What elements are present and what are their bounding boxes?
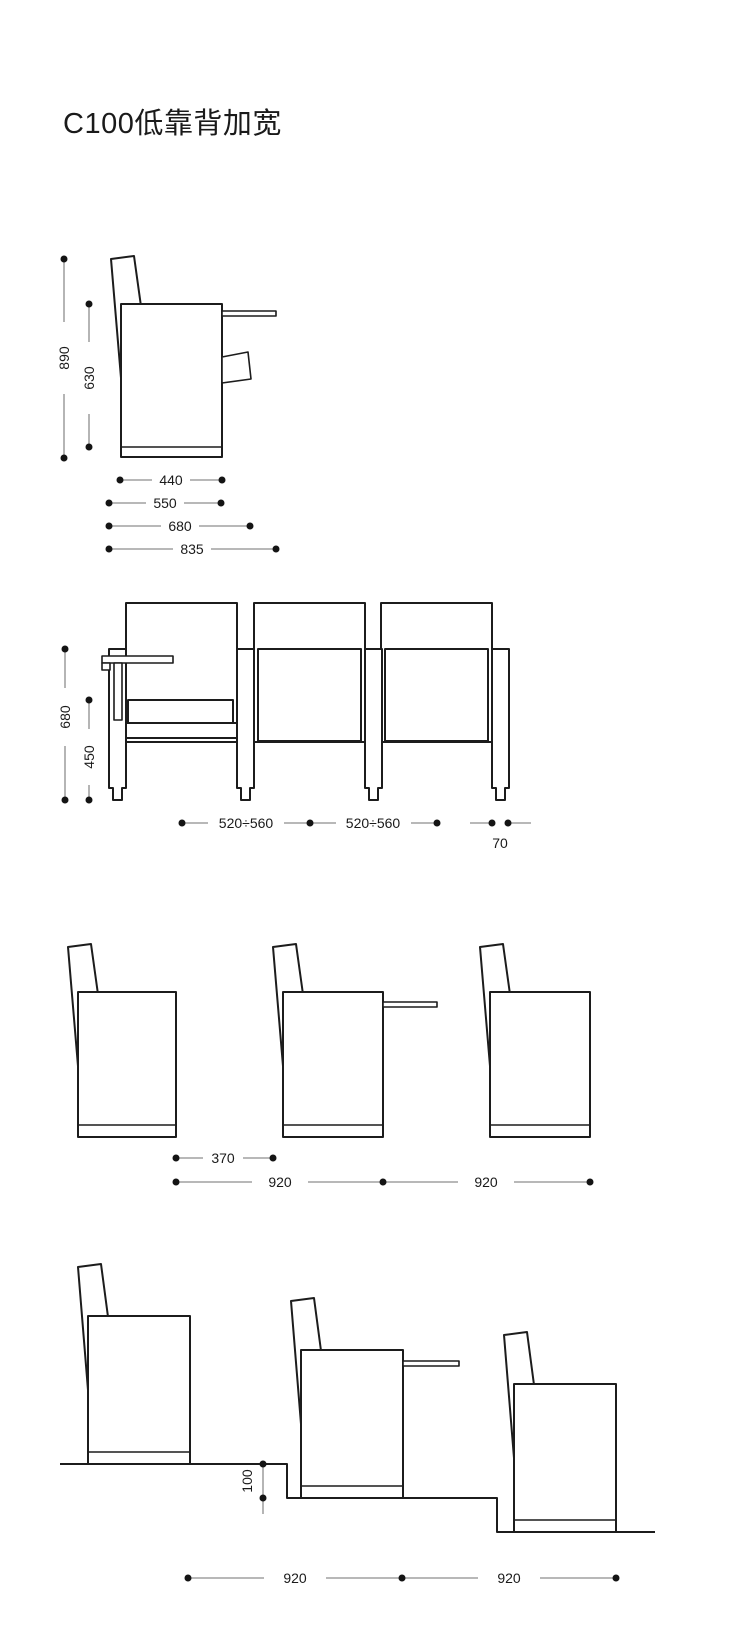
stowed-tablet-cap bbox=[102, 663, 110, 670]
dim-depth-550: 550 bbox=[106, 495, 225, 511]
view-row-flat: 370 920 920 bbox=[68, 944, 594, 1190]
tablet-arm bbox=[403, 1361, 459, 1366]
dim-label-row-pitch-1: 920 bbox=[268, 1174, 292, 1190]
chair-1 bbox=[78, 1264, 190, 1464]
dim-row-pitch-flat: 920 920 bbox=[173, 1174, 594, 1190]
seat-cushion-top bbox=[128, 700, 233, 723]
view-three-seat-front: 680 450 520÷560 520÷560 70 bbox=[57, 603, 531, 851]
seat-body bbox=[490, 992, 590, 1137]
dim-label-front-seat-height: 450 bbox=[81, 745, 97, 769]
dim-row-pitch-stepped: 920 920 bbox=[185, 1570, 620, 1586]
dim-seat-height: 630 bbox=[81, 301, 97, 451]
seat-body bbox=[514, 1384, 616, 1532]
dim-seat-widths: 520÷560 520÷560 70 bbox=[179, 815, 532, 851]
folded-seat-2 bbox=[258, 649, 361, 741]
tablet-arm bbox=[383, 1002, 437, 1007]
side-support-2 bbox=[237, 649, 254, 800]
seat-cushion-base bbox=[126, 723, 237, 738]
side-support-3 bbox=[365, 649, 382, 800]
chair-2 bbox=[291, 1298, 459, 1498]
dim-label-seat-width-right: 520÷560 bbox=[346, 815, 401, 831]
chair-2 bbox=[273, 944, 437, 1137]
dim-row-clearance: 370 bbox=[173, 1150, 277, 1166]
seat-body bbox=[88, 1316, 190, 1464]
dim-label-depth-550: 550 bbox=[153, 495, 177, 511]
dim-armrest-height: 680 bbox=[57, 646, 73, 804]
chair-1 bbox=[68, 944, 176, 1137]
dim-total-height: 890 bbox=[56, 256, 72, 462]
stowed-tablet bbox=[102, 656, 173, 663]
page-title: C100低靠背加宽 bbox=[63, 107, 282, 140]
folded-tablet bbox=[222, 352, 251, 383]
dim-label-row-pitch-2: 920 bbox=[497, 1570, 521, 1586]
folded-seat-3 bbox=[385, 649, 488, 741]
seat-body bbox=[78, 992, 176, 1137]
dim-label-row-pitch-1: 920 bbox=[283, 1570, 307, 1586]
seat-body bbox=[283, 992, 383, 1137]
tablet-arm bbox=[222, 311, 276, 316]
dim-seat-depth: 440 bbox=[117, 472, 226, 488]
dim-label-total-height: 890 bbox=[56, 346, 72, 370]
tablet-post bbox=[114, 663, 122, 720]
side-support-4 bbox=[492, 649, 509, 800]
dim-label-step-riser: 100 bbox=[239, 1469, 255, 1493]
dim-label-depth-680: 680 bbox=[168, 518, 192, 534]
dim-label-seat-height: 630 bbox=[81, 366, 97, 390]
dim-label-row-pitch-2: 920 bbox=[474, 1174, 498, 1190]
chair-3 bbox=[480, 944, 590, 1137]
view-row-stepped: 100 920 920 bbox=[60, 1264, 655, 1586]
dim-label-depth-total: 835 bbox=[180, 541, 204, 557]
dim-label-support-width: 70 bbox=[492, 835, 508, 851]
drawing-svg: C100低靠背加宽 890 630 440 5 bbox=[0, 0, 750, 1652]
chair-3 bbox=[504, 1332, 616, 1532]
view-single-seat-side: 890 630 440 550 680 835 bbox=[56, 256, 280, 558]
dim-depth-total: 835 bbox=[106, 541, 280, 557]
dim-label-seat-width-left: 520÷560 bbox=[219, 815, 274, 831]
dim-label-row-clearance: 370 bbox=[211, 1150, 235, 1166]
seat-body bbox=[121, 304, 222, 457]
seat-body bbox=[301, 1350, 403, 1498]
dim-front-seat-height: 450 bbox=[81, 697, 97, 804]
dim-depth-680: 680 bbox=[106, 518, 254, 534]
dim-step-riser: 100 bbox=[239, 1461, 267, 1515]
dim-label-armrest-height: 680 bbox=[57, 705, 73, 729]
technical-drawing-page: C100低靠背加宽 890 630 440 5 bbox=[0, 0, 750, 1652]
dim-label-seat-depth: 440 bbox=[159, 472, 183, 488]
